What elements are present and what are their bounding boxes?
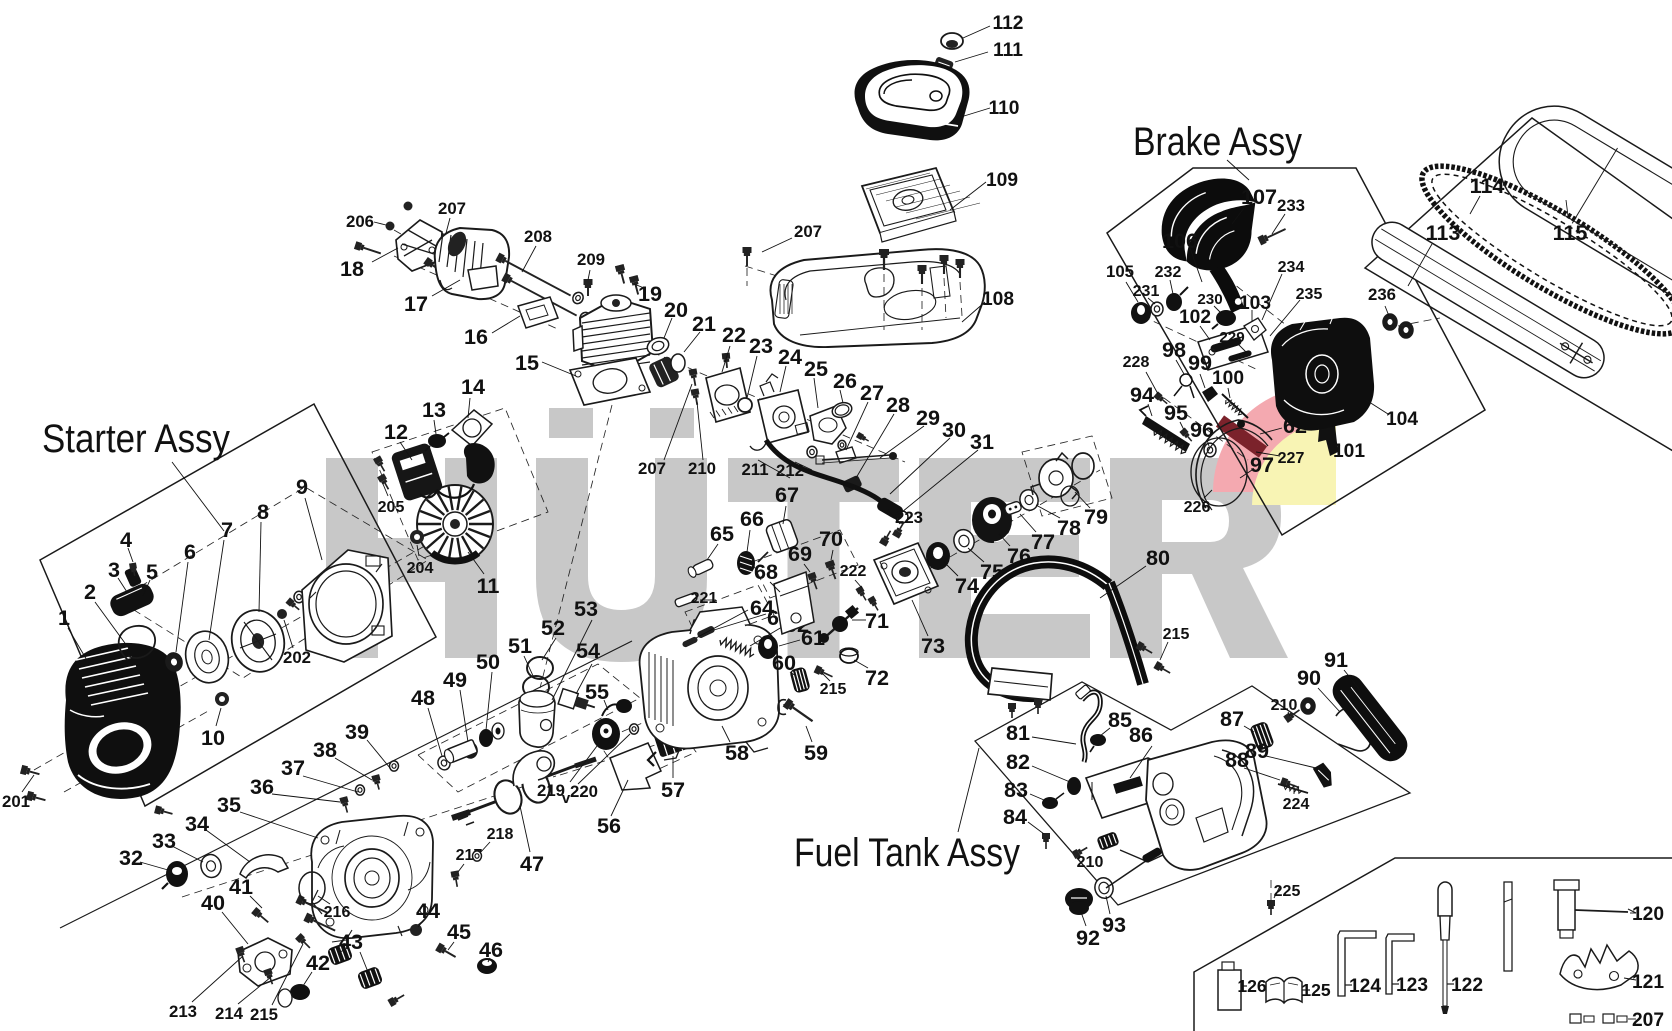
svg-text:121: 121	[1632, 972, 1664, 993]
svg-text:55: 55	[585, 679, 609, 704]
svg-text:221: 221	[691, 590, 718, 607]
svg-text:96: 96	[1190, 417, 1214, 442]
svg-text:1: 1	[58, 605, 70, 630]
svg-text:126: 126	[1237, 976, 1267, 996]
svg-text:210: 210	[1271, 697, 1298, 714]
svg-text:4: 4	[120, 527, 132, 552]
svg-text:236: 236	[1368, 285, 1396, 304]
svg-text:47: 47	[520, 851, 544, 876]
svg-text:228: 228	[1123, 354, 1150, 371]
svg-text:90: 90	[1297, 665, 1321, 690]
svg-text:50: 50	[476, 649, 500, 674]
svg-text:112: 112	[993, 13, 1024, 34]
svg-text:65: 65	[710, 521, 734, 546]
svg-text:81: 81	[1006, 720, 1030, 745]
svg-text:64: 64	[750, 595, 774, 620]
svg-text:19: 19	[638, 281, 662, 306]
svg-text:8: 8	[257, 499, 269, 524]
svg-text:Brake Assy: Brake Assy	[1133, 120, 1302, 164]
svg-text:24: 24	[778, 344, 802, 369]
svg-text:102: 102	[1179, 307, 1211, 328]
svg-text:31: 31	[970, 429, 994, 454]
svg-text:213: 213	[169, 1002, 197, 1021]
svg-text:100: 100	[1212, 368, 1244, 389]
svg-text:93: 93	[1102, 912, 1126, 937]
svg-text:54: 54	[576, 638, 600, 663]
svg-text:220: 220	[570, 782, 598, 801]
svg-text:25: 25	[804, 356, 828, 381]
svg-text:2: 2	[84, 579, 96, 604]
svg-text:38: 38	[313, 737, 337, 762]
svg-text:233: 233	[1277, 196, 1305, 215]
svg-text:209: 209	[577, 250, 605, 269]
svg-text:48: 48	[411, 685, 435, 710]
svg-text:123: 123	[1396, 975, 1428, 996]
svg-text:207: 207	[438, 199, 466, 218]
svg-text:109: 109	[986, 170, 1018, 191]
svg-text:82: 82	[1006, 749, 1030, 774]
svg-text:231: 231	[1133, 283, 1160, 300]
svg-text:45: 45	[447, 919, 471, 944]
svg-text:70: 70	[819, 526, 843, 551]
svg-text:84: 84	[1003, 804, 1027, 829]
svg-text:232: 232	[1155, 264, 1182, 281]
svg-text:14: 14	[461, 374, 485, 399]
svg-text:87: 87	[1220, 706, 1244, 731]
svg-text:53: 53	[574, 596, 598, 621]
svg-text:211: 211	[741, 460, 768, 479]
svg-text:101: 101	[1333, 441, 1365, 462]
svg-text:11: 11	[477, 573, 500, 598]
svg-text:230: 230	[1197, 291, 1222, 308]
svg-text:205: 205	[378, 499, 405, 516]
svg-text:39: 39	[345, 719, 369, 744]
svg-text:210: 210	[1077, 854, 1104, 871]
svg-text:216: 216	[324, 904, 351, 921]
svg-text:v: v	[562, 790, 571, 807]
svg-text:74: 74	[955, 573, 979, 598]
svg-text:111: 111	[993, 40, 1023, 61]
svg-text:222: 222	[840, 563, 867, 580]
svg-text:229: 229	[1219, 329, 1244, 346]
svg-text:16: 16	[464, 324, 488, 349]
svg-text:207: 207	[638, 459, 666, 478]
svg-text:104: 104	[1386, 409, 1418, 430]
svg-text:7: 7	[221, 517, 233, 542]
svg-text:110: 110	[989, 98, 1020, 119]
svg-text:215: 215	[250, 1005, 278, 1024]
svg-text:22: 22	[722, 322, 746, 347]
svg-text:71: 71	[865, 608, 889, 633]
svg-text:32: 32	[119, 845, 143, 870]
svg-text:41: 41	[229, 874, 253, 899]
svg-text:105: 105	[1106, 262, 1134, 281]
svg-text:49: 49	[443, 667, 467, 692]
svg-text:212: 212	[776, 461, 804, 480]
svg-text:Starter Assy: Starter Assy	[42, 417, 230, 461]
svg-text:215: 215	[820, 681, 847, 698]
svg-text:98: 98	[1162, 337, 1186, 362]
svg-text:59: 59	[804, 740, 828, 765]
svg-text:113: 113	[1426, 220, 1461, 245]
svg-text:Fuel Tank Assy: Fuel Tank Assy	[794, 831, 1020, 875]
svg-text:13: 13	[422, 397, 446, 422]
svg-text:29: 29	[916, 405, 940, 430]
svg-text:94: 94	[1130, 382, 1154, 407]
svg-text:80: 80	[1146, 545, 1170, 570]
svg-text:18: 18	[340, 256, 364, 281]
svg-text:20: 20	[664, 297, 688, 322]
svg-text:97: 97	[1250, 452, 1274, 477]
svg-text:44: 44	[416, 898, 440, 923]
svg-text:5: 5	[146, 559, 158, 584]
svg-text:206: 206	[346, 212, 374, 231]
svg-text:67: 67	[775, 482, 799, 507]
svg-text:218: 218	[487, 826, 514, 843]
svg-text:33: 33	[152, 828, 176, 853]
svg-text:37: 37	[281, 755, 305, 780]
svg-text:17: 17	[404, 291, 428, 316]
svg-text:207: 207	[794, 222, 822, 241]
svg-text:68: 68	[754, 559, 778, 584]
svg-text:124: 124	[1349, 976, 1381, 997]
svg-text:21: 21	[692, 311, 716, 336]
svg-text:73: 73	[921, 633, 945, 658]
svg-text:125: 125	[1301, 980, 1331, 1000]
svg-text:225: 225	[1274, 883, 1301, 900]
svg-text:107: 107	[1241, 184, 1277, 209]
svg-text:43: 43	[339, 929, 363, 954]
svg-text:92: 92	[1076, 925, 1100, 950]
svg-text:10: 10	[201, 725, 225, 750]
svg-text:226: 226	[1184, 499, 1211, 516]
svg-text:26: 26	[833, 368, 857, 393]
svg-text:89: 89	[1245, 738, 1269, 763]
svg-text:57: 57	[661, 777, 685, 802]
svg-text:204: 204	[407, 560, 434, 577]
svg-text:227: 227	[1278, 450, 1305, 467]
svg-text:27: 27	[860, 380, 884, 405]
svg-text:120: 120	[1632, 904, 1664, 925]
svg-text:52: 52	[541, 615, 565, 640]
svg-text:215: 215	[1163, 626, 1190, 643]
svg-text:219: 219	[537, 781, 565, 800]
svg-text:28: 28	[886, 392, 910, 417]
svg-text:207: 207	[1632, 1010, 1664, 1031]
svg-text:40: 40	[201, 890, 225, 915]
svg-text:79: 79	[1084, 504, 1108, 529]
svg-text:223: 223	[895, 508, 923, 527]
svg-text:56: 56	[597, 813, 621, 838]
svg-text:95: 95	[1164, 400, 1188, 425]
svg-text:77: 77	[1031, 529, 1055, 554]
svg-text:6: 6	[184, 539, 196, 564]
svg-text:51: 51	[508, 633, 532, 658]
svg-text:201: 201	[2, 792, 30, 811]
svg-text:234: 234	[1278, 259, 1305, 276]
svg-text:46: 46	[479, 937, 503, 962]
svg-text:108: 108	[982, 289, 1014, 310]
svg-text:115: 115	[1553, 220, 1588, 245]
svg-text:35: 35	[217, 792, 241, 817]
svg-text:114: 114	[1470, 173, 1505, 198]
svg-text:30: 30	[942, 417, 966, 442]
svg-text:86: 86	[1129, 722, 1153, 747]
svg-text:235: 235	[1296, 286, 1323, 303]
svg-text:3: 3	[108, 557, 120, 582]
svg-text:106: 106	[1162, 228, 1198, 253]
svg-text:208: 208	[524, 227, 552, 246]
svg-text:122: 122	[1451, 975, 1483, 996]
svg-text:210: 210	[688, 459, 716, 478]
svg-text:91: 91	[1324, 647, 1348, 672]
svg-text:66: 66	[740, 506, 764, 531]
svg-text:69: 69	[788, 541, 812, 566]
svg-text:34: 34	[185, 811, 209, 836]
svg-text:214: 214	[215, 1004, 244, 1023]
svg-text:83: 83	[1004, 777, 1028, 802]
svg-text:99: 99	[1188, 350, 1212, 375]
svg-text:23: 23	[749, 333, 773, 358]
svg-text:58: 58	[725, 740, 749, 765]
svg-text:36: 36	[250, 774, 274, 799]
svg-text:15: 15	[515, 350, 539, 375]
svg-text:224: 224	[1283, 796, 1310, 813]
svg-text:42: 42	[306, 950, 330, 975]
svg-text:12: 12	[384, 419, 408, 444]
svg-text:9: 9	[296, 474, 308, 499]
svg-text:78: 78	[1057, 515, 1081, 540]
svg-text:72: 72	[865, 665, 889, 690]
